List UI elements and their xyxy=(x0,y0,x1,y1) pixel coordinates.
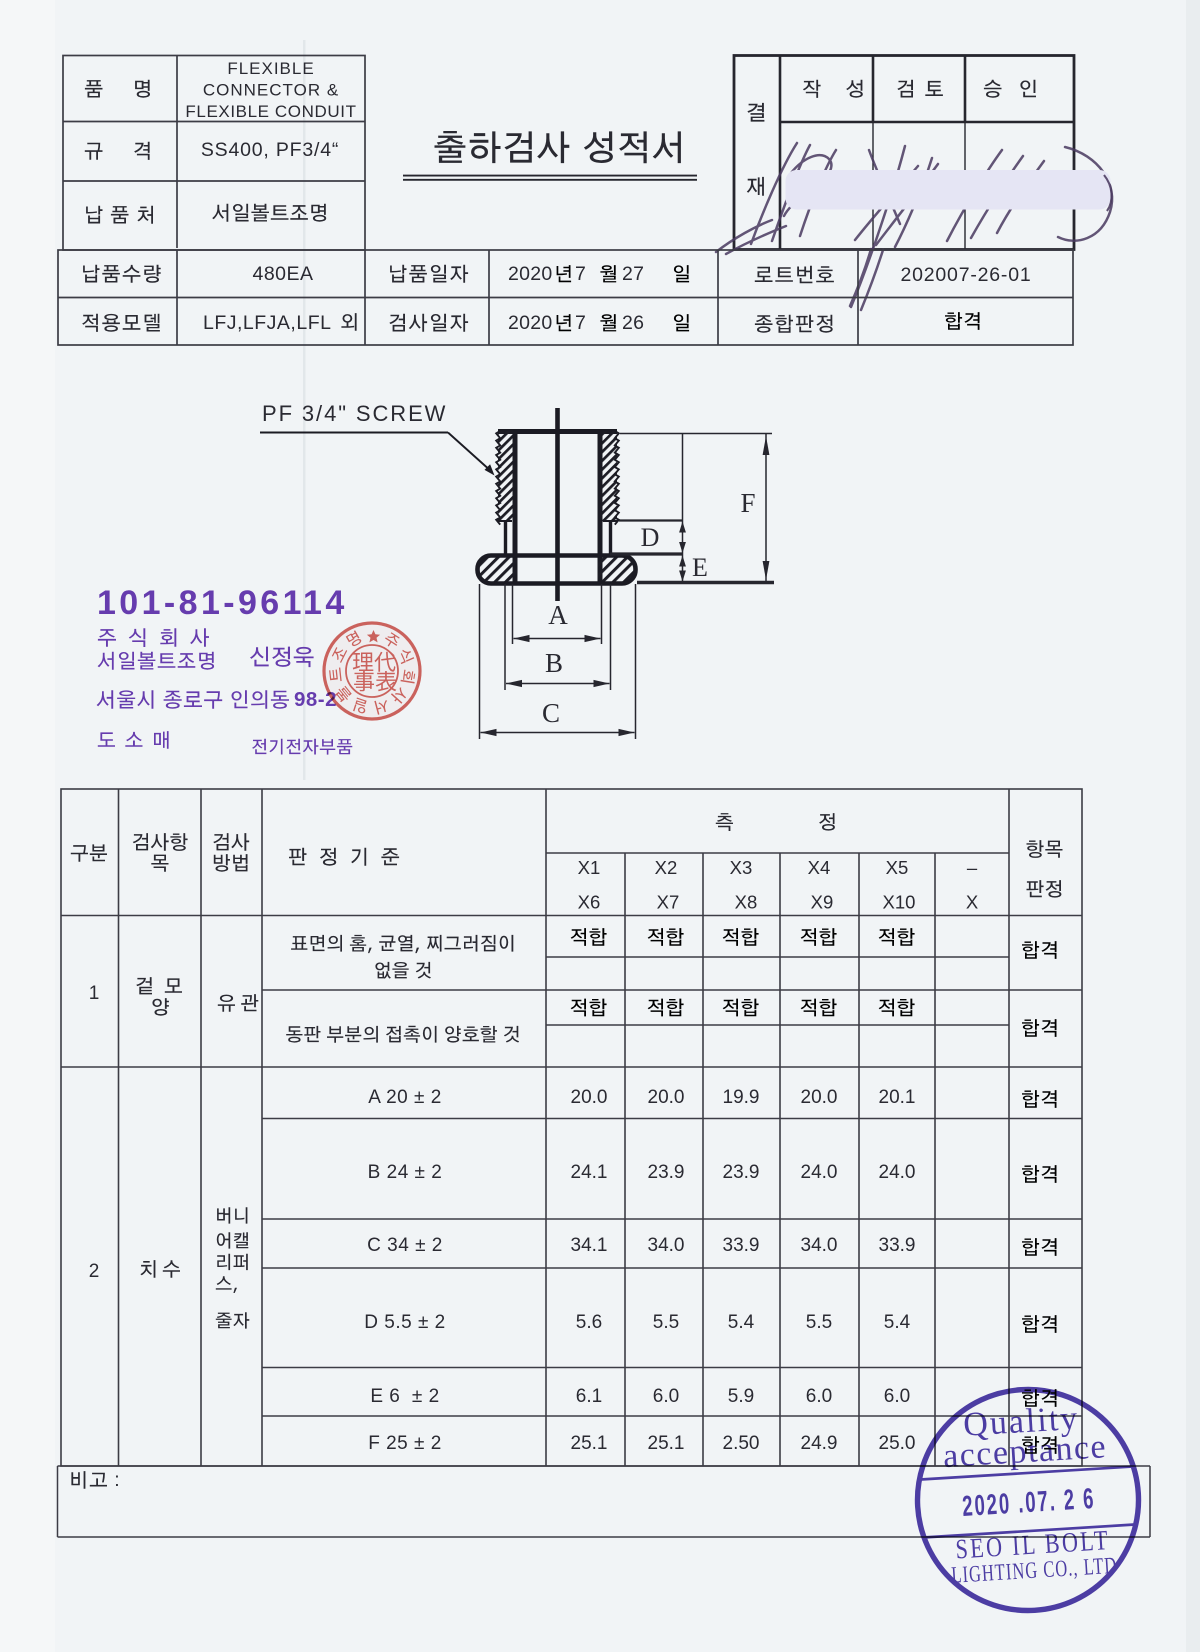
svg-text:20.0: 20.0 xyxy=(571,1087,608,1108)
svg-text:A: A xyxy=(548,600,568,630)
svg-text:SS400, PF3/4“: SS400, PF3/4“ xyxy=(201,139,339,161)
svg-text:5.6: 5.6 xyxy=(576,1312,602,1333)
svg-text:1: 1 xyxy=(89,983,100,1004)
svg-text:24.0: 24.0 xyxy=(801,1162,838,1183)
svg-text:FLEXIBLE: FLEXIBLE xyxy=(227,59,314,78)
svg-text:24.0: 24.0 xyxy=(879,1162,916,1183)
svg-text:20.0: 20.0 xyxy=(801,1087,838,1108)
svg-text:X8: X8 xyxy=(735,892,758,913)
svg-text:X7: X7 xyxy=(657,892,680,913)
svg-text:6.0: 6.0 xyxy=(806,1386,832,1407)
svg-text:2020: 2020 xyxy=(508,312,553,334)
svg-text:2: 2 xyxy=(89,1261,100,1282)
svg-text:23.9: 23.9 xyxy=(723,1162,760,1183)
svg-text:34.0: 34.0 xyxy=(648,1235,685,1256)
svg-text:5.5: 5.5 xyxy=(806,1312,832,1333)
svg-text:FLEXIBLE CONDUIT: FLEXIBLE CONDUIT xyxy=(185,102,356,121)
svg-text:2020: 2020 xyxy=(508,263,553,285)
svg-text:F 25 ± 2: F 25 ± 2 xyxy=(368,1433,442,1454)
svg-text:CONNECTOR &: CONNECTOR & xyxy=(203,81,339,100)
svg-text:20.0: 20.0 xyxy=(648,1087,685,1108)
svg-text:2.50: 2.50 xyxy=(723,1433,760,1454)
svg-text:480EA: 480EA xyxy=(252,263,313,285)
svg-text:5.4: 5.4 xyxy=(884,1312,911,1333)
svg-text:X9: X9 xyxy=(811,892,834,913)
svg-text:33.9: 33.9 xyxy=(723,1235,760,1256)
svg-text:X2: X2 xyxy=(655,857,678,878)
svg-text:23.9: 23.9 xyxy=(648,1162,685,1183)
svg-text:27: 27 xyxy=(622,263,644,285)
svg-text:34.1: 34.1 xyxy=(571,1235,608,1256)
svg-text:24.1: 24.1 xyxy=(571,1162,608,1183)
svg-text:26: 26 xyxy=(622,312,644,334)
svg-text:6.0: 6.0 xyxy=(884,1386,910,1407)
svg-text:101-81-96114: 101-81-96114 xyxy=(97,584,348,622)
svg-text:7: 7 xyxy=(575,312,586,334)
svg-text:B 24 ± 2: B 24 ± 2 xyxy=(368,1162,443,1183)
svg-text:E: E xyxy=(692,553,708,582)
svg-text::: : xyxy=(114,1469,119,1491)
svg-text:LFJ,LFJA,LFL: LFJ,LFJA,LFL xyxy=(203,312,331,334)
svg-text:5.9: 5.9 xyxy=(728,1386,754,1407)
svg-text:6.0: 6.0 xyxy=(653,1386,679,1407)
svg-text:E 6 ± 2: E 6 ± 2 xyxy=(370,1386,439,1407)
svg-text:20.1: 20.1 xyxy=(879,1087,916,1108)
svg-text:X6: X6 xyxy=(578,892,601,913)
svg-text:24.9: 24.9 xyxy=(801,1433,838,1454)
svg-text:6.1: 6.1 xyxy=(576,1386,602,1407)
svg-text:33.9: 33.9 xyxy=(879,1235,916,1256)
svg-text:C 34 ± 2: C 34 ± 2 xyxy=(367,1235,443,1256)
svg-text:B: B xyxy=(545,648,563,678)
svg-text:X1: X1 xyxy=(578,857,601,878)
svg-text:202007-26-01: 202007-26-01 xyxy=(900,264,1031,286)
svg-text:25.0: 25.0 xyxy=(879,1433,916,1454)
svg-text:A 20 ± 2: A 20 ± 2 xyxy=(368,1087,442,1108)
svg-text:PF 3/4" SCREW: PF 3/4" SCREW xyxy=(262,401,447,426)
svg-text:X10: X10 xyxy=(883,892,916,913)
svg-text:25.1: 25.1 xyxy=(648,1433,685,1454)
svg-text:–: – xyxy=(967,857,978,878)
svg-text:5.4: 5.4 xyxy=(728,1312,755,1333)
svg-text:X: X xyxy=(966,892,978,913)
svg-text:34.0: 34.0 xyxy=(801,1235,838,1256)
svg-text:X5: X5 xyxy=(886,857,909,878)
svg-text:D: D xyxy=(641,523,660,552)
svg-text:7: 7 xyxy=(575,263,586,285)
svg-text:D 5.5 ± 2: D 5.5 ± 2 xyxy=(364,1312,445,1333)
svg-text:19.9: 19.9 xyxy=(723,1087,760,1108)
svg-text:X3: X3 xyxy=(730,857,753,878)
svg-text:5.5: 5.5 xyxy=(653,1312,679,1333)
svg-text:F: F xyxy=(740,488,755,518)
svg-text:C: C xyxy=(542,698,560,728)
svg-text:X4: X4 xyxy=(808,857,831,878)
svg-text:25.1: 25.1 xyxy=(571,1433,608,1454)
